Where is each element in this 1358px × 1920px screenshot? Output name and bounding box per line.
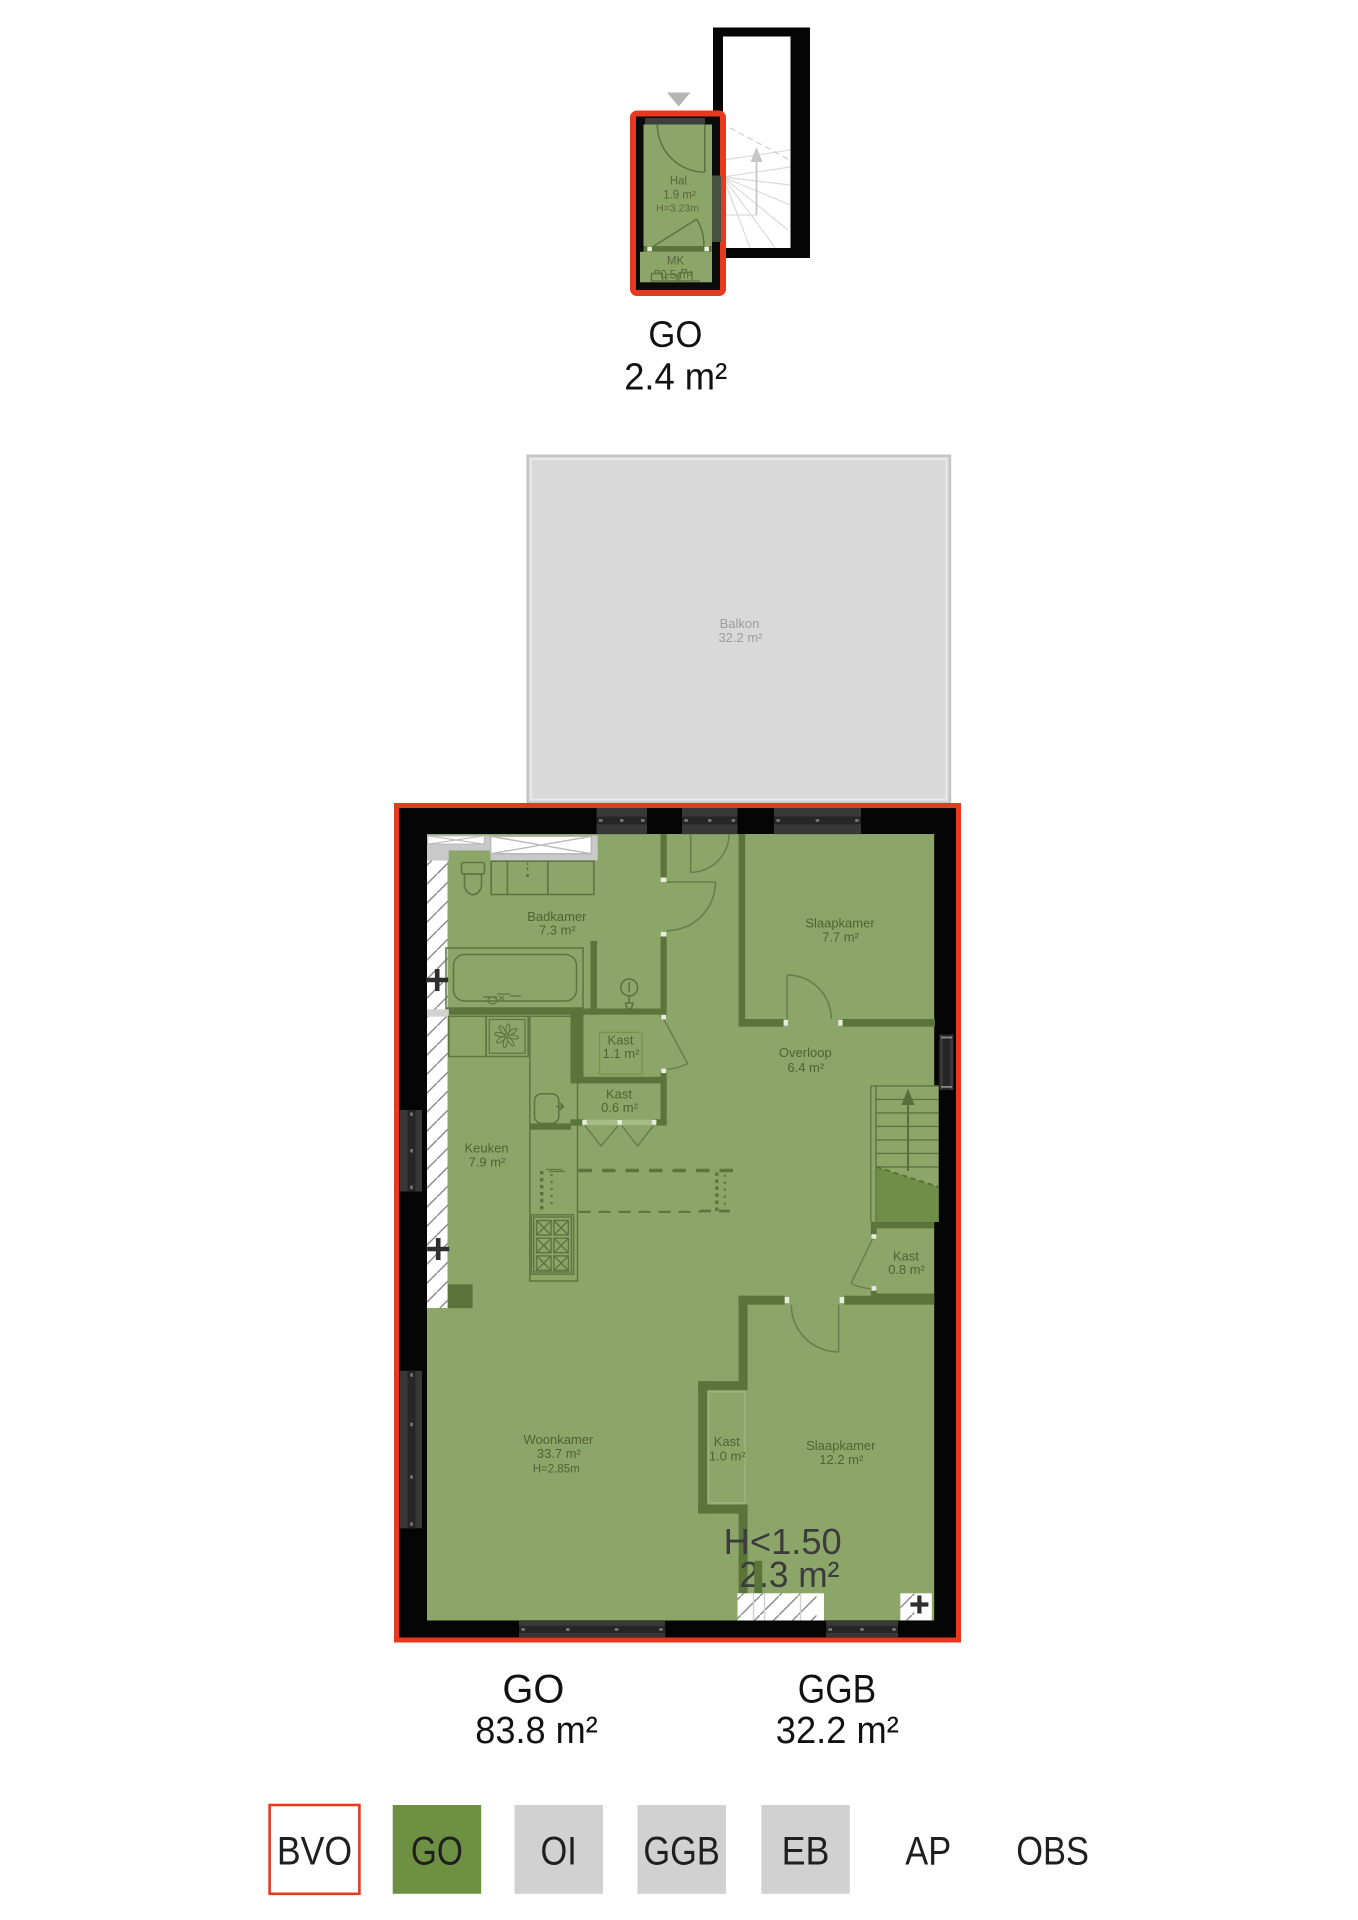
svg-text:EB: EB <box>782 1829 830 1873</box>
svg-text:AP: AP <box>905 1829 951 1873</box>
svg-text:GO: GO <box>648 314 702 355</box>
svg-text:0.8 m²: 0.8 m² <box>888 1262 926 1277</box>
svg-text:H=3.23m: H=3.23m <box>656 203 699 215</box>
svg-text:Kast: Kast <box>714 1434 740 1449</box>
svg-text:6.4 m²: 6.4 m² <box>787 1060 825 1075</box>
svg-text:GGB: GGB <box>798 1668 876 1712</box>
svg-text:Keuken: Keuken <box>464 1140 508 1155</box>
svg-text:H=2.85m: H=2.85m <box>533 1464 580 1476</box>
svg-text:32.2 m²: 32.2 m² <box>718 630 763 645</box>
svg-text:Slaapkamer: Slaapkamer <box>806 1438 876 1453</box>
svg-text:Balkon: Balkon <box>720 616 760 631</box>
svg-text:OBS: OBS <box>1016 1829 1089 1873</box>
svg-text:83.8 m²: 83.8 m² <box>475 1710 598 1752</box>
svg-text:GO: GO <box>502 1668 564 1712</box>
svg-text:1.1 m²: 1.1 m² <box>603 1046 641 1061</box>
svg-text:Overloop: Overloop <box>779 1045 832 1060</box>
svg-text:OI: OI <box>541 1829 577 1873</box>
svg-text:7.9 m²: 7.9 m² <box>469 1155 507 1170</box>
svg-text:BVO: BVO <box>277 1829 352 1873</box>
svg-text:Slaapkamer: Slaapkamer <box>805 915 875 930</box>
svg-text:1.0 m²: 1.0 m² <box>709 1448 747 1463</box>
svg-text:Hal: Hal <box>670 176 687 188</box>
svg-text:33.7 m²: 33.7 m² <box>537 1446 582 1461</box>
svg-text:GGB: GGB <box>643 1829 719 1873</box>
svg-text:12.2 m²: 12.2 m² <box>819 1452 864 1467</box>
svg-text:7.3 m²: 7.3 m² <box>539 923 577 938</box>
svg-text:7.7 m²: 7.7 m² <box>822 929 860 944</box>
svg-text:2.4 m²: 2.4 m² <box>624 357 727 399</box>
svg-text:GO: GO <box>411 1829 463 1873</box>
svg-text:32.2 m²: 32.2 m² <box>776 1710 899 1752</box>
svg-text:0.6 m²: 0.6 m² <box>601 1100 639 1115</box>
svg-text:MK: MK <box>667 256 685 268</box>
svg-text:1.9 m²: 1.9 m² <box>663 189 696 201</box>
